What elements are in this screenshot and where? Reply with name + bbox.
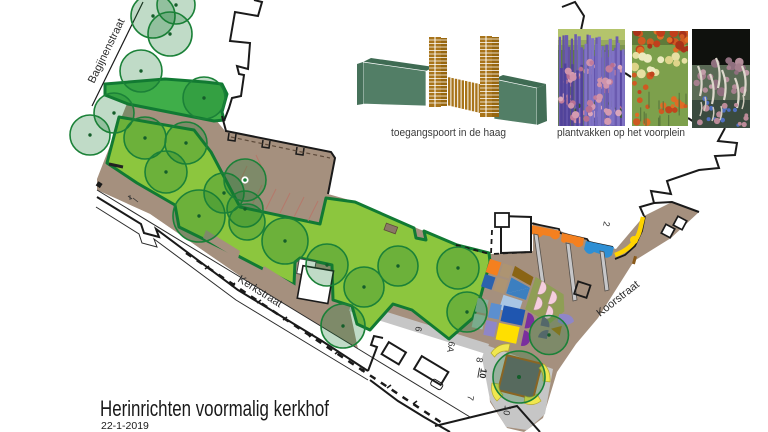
svg-text:7: 7 [465, 395, 476, 402]
svg-text:22-1-2019: 22-1-2019 [101, 420, 149, 432]
svg-text:toegangspoort in de haag: toegangspoort in de haag [391, 127, 506, 139]
svg-text:2: 2 [601, 221, 612, 228]
svg-text:plantvakken op het voorplein: plantvakken op het voorplein [557, 127, 685, 139]
svg-text:10: 10 [477, 368, 489, 380]
svg-text:10: 10 [501, 405, 513, 417]
svg-text:6A: 6A [445, 341, 457, 354]
svg-text:8: 8 [474, 357, 485, 364]
svg-text:Herinrichten voormalig kerkhof: Herinrichten voormalig kerkhof [100, 396, 330, 421]
